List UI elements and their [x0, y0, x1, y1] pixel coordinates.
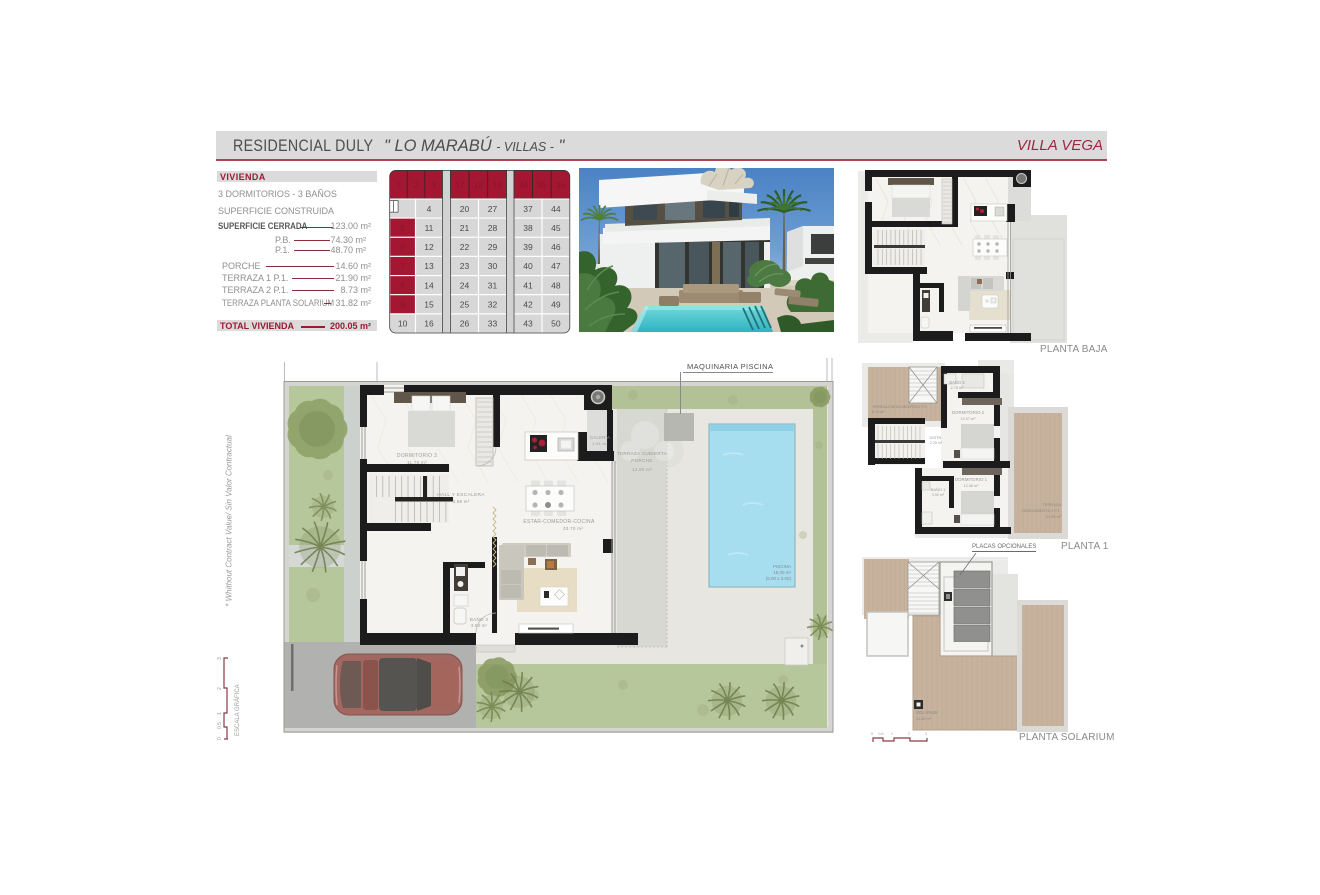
- svg-text:(6.00 x 3.00): (6.00 x 3.00): [766, 576, 792, 581]
- svg-text:31.82 m²: 31.82 m²: [916, 717, 932, 721]
- svg-text:6: 6: [400, 242, 405, 252]
- svg-text:16: 16: [424, 319, 434, 329]
- svg-text:21: 21: [460, 223, 470, 233]
- svg-text:1: 1: [217, 712, 223, 715]
- svg-text:17: 17: [455, 180, 465, 190]
- svg-text:39: 39: [523, 242, 533, 252]
- svg-text:43: 43: [523, 319, 533, 329]
- svg-text:15: 15: [424, 300, 434, 310]
- svg-text:TERRAZA: TERRAZA: [1042, 502, 1061, 507]
- svg-text:28: 28: [488, 223, 498, 233]
- svg-text:36: 36: [556, 180, 566, 190]
- svg-text:TERRAZA CUBIERTA: TERRAZA CUBIERTA: [617, 451, 668, 456]
- svg-text:11.70 m²: 11.70 m²: [407, 460, 427, 465]
- svg-text:47: 47: [551, 261, 561, 271]
- svg-text:13: 13: [424, 261, 434, 271]
- svg-text:23: 23: [460, 261, 470, 271]
- svg-text:BAÑO 3: BAÑO 3: [470, 616, 489, 622]
- svg-text:22: 22: [460, 242, 470, 252]
- svg-text:45: 45: [551, 223, 561, 233]
- svg-text:ESCALA GRÁFICA: ESCALA GRÁFICA: [234, 684, 241, 736]
- svg-text:27: 27: [488, 204, 498, 214]
- svg-text:9.98 m²: 9.98 m²: [453, 499, 470, 504]
- svg-text:3.90 m²: 3.90 m²: [932, 493, 945, 497]
- svg-text:50: 50: [551, 319, 561, 329]
- svg-text:35: 35: [537, 180, 547, 190]
- svg-text:12.07 m²: 12.07 m²: [961, 417, 977, 421]
- svg-text:1: 1: [396, 180, 401, 190]
- svg-text:12: 12: [424, 242, 434, 252]
- svg-text:18.00 m²: 18.00 m²: [773, 570, 791, 575]
- svg-text:14: 14: [424, 280, 434, 290]
- svg-text:DORMITORIO 3: DORMITORIO 3: [397, 453, 437, 459]
- svg-text:3: 3: [431, 180, 436, 190]
- svg-text:BAÑO 1: BAÑO 1: [931, 487, 946, 492]
- svg-text:2: 2: [908, 732, 910, 736]
- svg-text:31: 31: [488, 280, 498, 290]
- svg-text:8.73 m²: 8.73 m²: [872, 410, 885, 414]
- svg-text:40: 40: [523, 261, 533, 271]
- svg-text:26: 26: [460, 319, 470, 329]
- svg-text:42: 42: [523, 300, 533, 310]
- svg-text:SOLARIUM: SOLARIUM: [916, 710, 938, 715]
- svg-text:20: 20: [460, 204, 470, 214]
- svg-text:GALERÍA: GALERÍA: [590, 435, 610, 440]
- svg-text:2: 2: [217, 687, 223, 690]
- svg-text:TERRAZA DESCUBIERTA 2 P.1.: TERRAZA DESCUBIERTA 2 P.1.: [872, 405, 928, 409]
- svg-text:10: 10: [398, 319, 408, 329]
- svg-text:14.60 m²: 14.60 m²: [632, 467, 652, 472]
- svg-text:33.70 m²: 33.70 m²: [563, 526, 583, 531]
- svg-text:41: 41: [523, 280, 533, 290]
- svg-text:4: 4: [427, 204, 432, 214]
- svg-text:HALL Y ESCALERA: HALL Y ESCALERA: [437, 492, 485, 498]
- svg-text:2: 2: [414, 180, 419, 190]
- svg-text:29: 29: [488, 242, 498, 252]
- svg-text:0.5: 0.5: [217, 722, 223, 729]
- svg-text:DORMITORIO 2: DORMITORIO 2: [952, 410, 985, 415]
- svg-text:BAÑO 2: BAÑO 2: [949, 380, 965, 385]
- svg-text:DESCUBIERTA 1 P.1.: DESCUBIERTA 1 P.1.: [1022, 508, 1061, 513]
- svg-text:2.75 m²: 2.75 m²: [951, 386, 965, 390]
- svg-text:21.90 m²: 21.90 m²: [1046, 515, 1062, 519]
- svg-text:19: 19: [492, 180, 502, 190]
- svg-text:DISTR.: DISTR.: [929, 435, 942, 440]
- svg-text:3.60 m²: 3.60 m²: [471, 623, 488, 628]
- svg-text:49: 49: [551, 300, 561, 310]
- svg-text:2.25 m²: 2.25 m²: [930, 441, 943, 445]
- svg-text:9: 9: [400, 300, 405, 310]
- svg-text:32: 32: [488, 300, 498, 310]
- svg-text:24: 24: [460, 280, 470, 290]
- svg-text:0: 0: [217, 737, 223, 740]
- svg-text:38: 38: [523, 223, 533, 233]
- svg-text:44: 44: [551, 204, 561, 214]
- svg-text:48: 48: [551, 280, 561, 290]
- svg-text:46: 46: [551, 242, 561, 252]
- svg-text:11: 11: [425, 223, 434, 233]
- svg-text:5: 5: [400, 223, 405, 233]
- svg-text:8: 8: [400, 280, 405, 290]
- svg-text:7: 7: [400, 261, 405, 271]
- svg-text:PISCINA: PISCINA: [773, 564, 791, 569]
- svg-text:3: 3: [217, 657, 223, 660]
- svg-text:0: 0: [871, 732, 873, 736]
- svg-text:1.91 m²: 1.91 m²: [592, 441, 608, 446]
- svg-text:34: 34: [519, 180, 529, 190]
- svg-text:12.36 m²: 12.36 m²: [964, 484, 980, 488]
- svg-text:1: 1: [891, 732, 893, 736]
- svg-text:3: 3: [925, 732, 927, 736]
- svg-text:ESTAR-COMEDOR-COCINA: ESTAR-COMEDOR-COCINA: [523, 519, 595, 525]
- svg-text:DORMITORIO 1: DORMITORIO 1: [955, 477, 988, 482]
- svg-text:PORCHE: PORCHE: [631, 458, 652, 463]
- svg-text:18: 18: [474, 180, 484, 190]
- svg-text:37: 37: [523, 204, 533, 214]
- svg-text:30: 30: [488, 261, 498, 271]
- svg-text:25: 25: [460, 300, 470, 310]
- svg-text:33: 33: [488, 319, 498, 329]
- svg-text:0.5: 0.5: [879, 732, 884, 736]
